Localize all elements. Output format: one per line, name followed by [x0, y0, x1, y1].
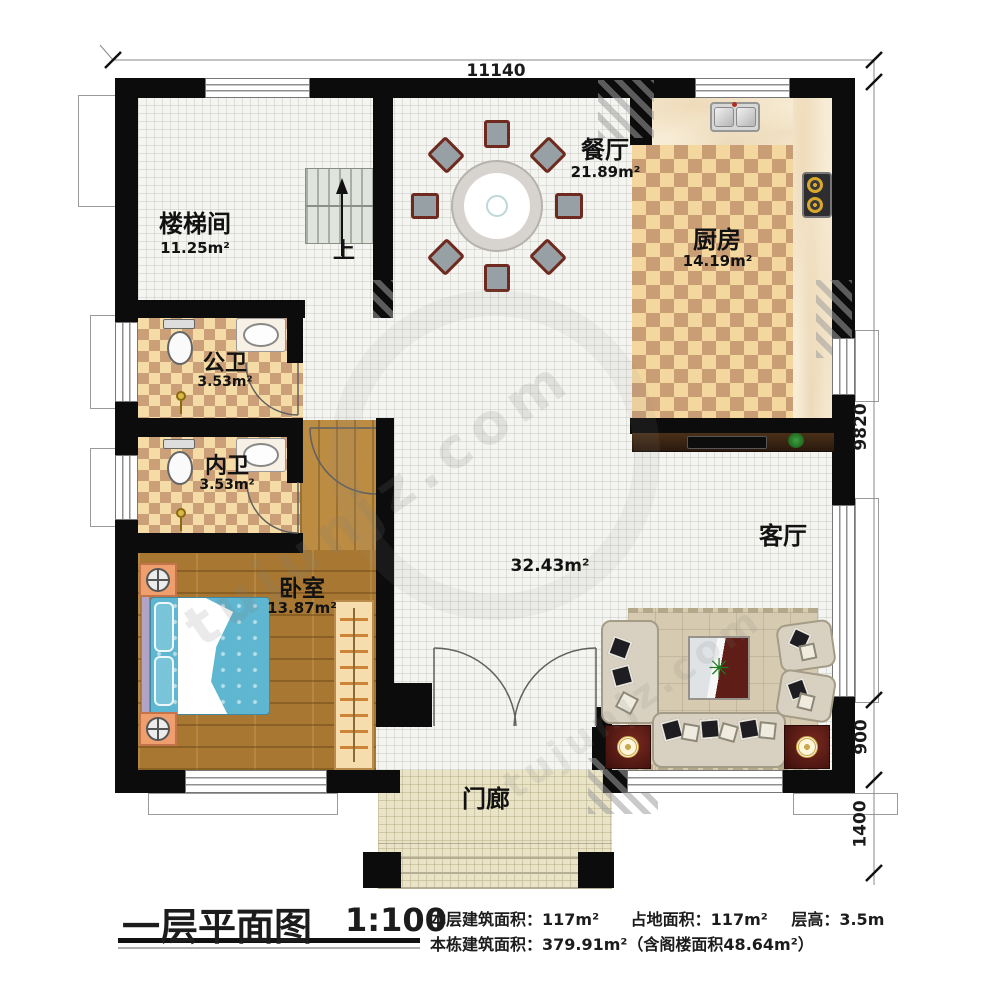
room-label-porch: 门廊 — [450, 787, 522, 812]
room-label-dining: 餐厅 — [560, 138, 650, 163]
room-label-inner-bath: 内卫 — [195, 455, 259, 478]
room-area-stairwell: 11.25m² — [140, 241, 250, 257]
plan-title: 一层平面图 — [122, 896, 312, 951]
room-area-public-bath: 3.53m² — [192, 375, 258, 390]
stats-line1: 本层建筑面积：117m² 占地面积：117m² 层高：3.5m — [430, 906, 884, 930]
floorplan-canvas: ✳ 11140 9820 900 1400 — [0, 0, 1000, 990]
room-label-kitchen: 厨房 — [672, 228, 762, 253]
room-label-public-bath: 公卫 — [193, 352, 257, 375]
stats-footprint: 占地面积：117m² — [631, 910, 768, 929]
room-area-living: 32.43m² — [508, 558, 592, 576]
dimension-label-top: 11140 — [463, 61, 529, 79]
room-label-living: 客厅 — [750, 524, 816, 549]
stats-storey-height: 层高：3.5m — [791, 910, 884, 929]
dimension-label-right-low: 1400 — [851, 797, 869, 852]
dimension-label-right-main: 9820 — [851, 397, 869, 457]
stats-line2: 本栋建筑面积：379.91m²（含阁楼面积48.64m²） — [430, 931, 814, 955]
door-swing-arcs — [246, 363, 596, 726]
room-area-inner-bath: 3.53m² — [194, 478, 260, 493]
stairs-up-label: 上 — [330, 240, 358, 263]
room-label-bedroom: 卧室 — [268, 577, 336, 601]
dimension-label-right-mid: 900 — [852, 715, 870, 760]
stats-floor-area: 本层建筑面积：117m² — [430, 910, 599, 929]
room-area-dining: 21.89m² — [558, 165, 653, 181]
room-label-stairwell: 楼梯间 — [140, 212, 250, 237]
room-area-bedroom: 13.87m² — [260, 601, 344, 617]
room-area-kitchen: 14.19m² — [670, 254, 765, 270]
